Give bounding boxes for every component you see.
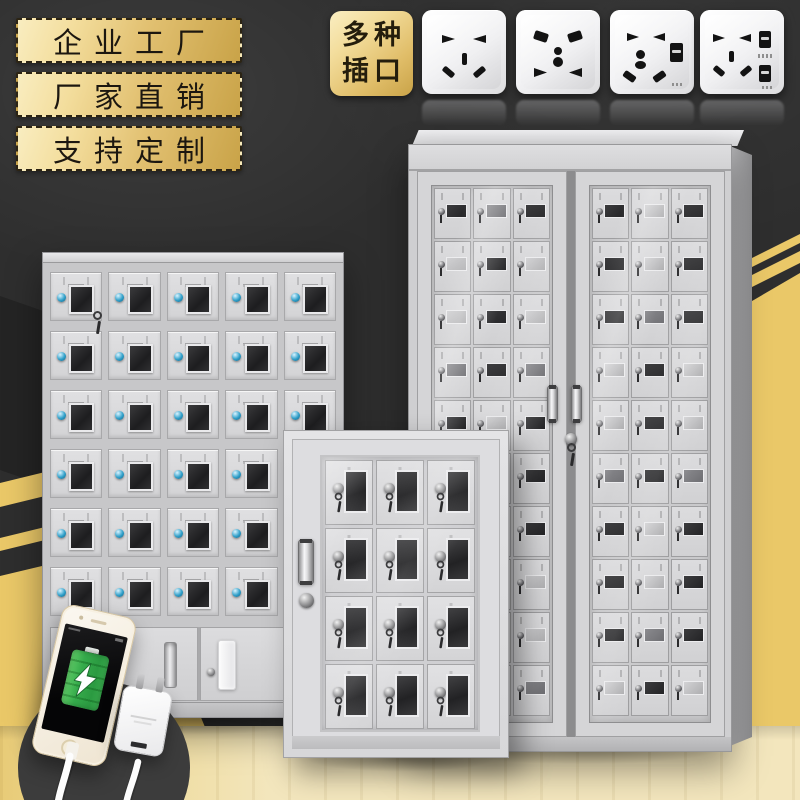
locker-door — [631, 294, 668, 345]
lock-icon — [291, 411, 300, 420]
lock-icon — [517, 367, 524, 374]
lock-icon — [635, 420, 642, 427]
key-icon — [335, 561, 343, 569]
door-handle — [297, 336, 323, 344]
feature-tag-text-line1: 多种 — [337, 18, 406, 54]
locker-window — [245, 285, 270, 314]
door-handle — [297, 395, 323, 403]
locker-window — [525, 628, 546, 642]
locker-window — [128, 580, 153, 609]
locker-door — [376, 596, 424, 661]
cabinet-side-panel — [730, 146, 752, 746]
locker-window — [186, 521, 211, 550]
lock-icon — [57, 529, 66, 538]
door-handle — [180, 454, 206, 462]
locker-door — [434, 347, 471, 398]
locker-window — [644, 628, 665, 642]
locker-door — [167, 390, 219, 439]
lock-icon — [596, 579, 603, 586]
locker-window — [644, 681, 665, 695]
locker-door — [671, 453, 708, 504]
home-button — [59, 738, 79, 758]
locker-door — [671, 347, 708, 398]
locker-window — [344, 674, 368, 717]
lock-icon — [115, 293, 124, 302]
locker-window — [604, 310, 625, 324]
lock-icon — [115, 411, 124, 420]
lock-icon — [517, 208, 524, 215]
promo-badge: 企业工厂 — [16, 18, 242, 63]
locker-window — [186, 580, 211, 609]
locker-window — [604, 363, 625, 377]
locker-door — [473, 188, 510, 239]
locker-window — [446, 416, 467, 430]
key-icon — [567, 443, 576, 452]
locker-window — [683, 522, 704, 536]
locker-door — [376, 528, 424, 593]
feature-tag: 多种 插口 — [330, 11, 413, 96]
lock-icon — [57, 588, 66, 597]
locker-door — [671, 241, 708, 292]
lock-icon — [675, 208, 682, 215]
locker-door — [225, 272, 277, 321]
locker-window — [644, 310, 665, 324]
locker-window — [245, 580, 270, 609]
locker-window — [186, 344, 211, 373]
locker-window — [486, 204, 507, 218]
door-handle — [180, 572, 206, 580]
promo-badge: 厂家直销 — [16, 72, 242, 117]
door-handle — [238, 513, 264, 521]
door-handle — [238, 572, 264, 580]
feature-tag-text-line2: 插口 — [337, 54, 406, 90]
locker-window — [186, 285, 211, 314]
charger-prong — [136, 673, 145, 689]
locker-door — [671, 665, 708, 716]
locker-window — [604, 469, 625, 483]
lock-icon — [596, 526, 603, 533]
lock-icon — [635, 579, 642, 586]
locker-window — [525, 469, 546, 483]
locker-window — [683, 469, 704, 483]
locker-door — [631, 506, 668, 557]
lock-icon — [232, 411, 241, 420]
lock-icon — [635, 314, 642, 321]
locker-window — [69, 403, 94, 432]
locker-window — [446, 204, 467, 218]
locker-window — [344, 538, 368, 581]
locker-window — [303, 403, 328, 432]
lightning-bolt-icon — [71, 660, 101, 700]
door-handle — [238, 395, 264, 403]
locker-door — [631, 559, 668, 610]
lock-icon — [596, 208, 603, 215]
lock-icon — [635, 367, 642, 374]
door-handle — [122, 395, 148, 403]
locker-window — [446, 674, 470, 717]
locker-door — [592, 612, 629, 663]
lock-icon — [299, 593, 314, 608]
locker-window — [69, 521, 94, 550]
locker-window — [525, 522, 546, 536]
cabinet-top-rim — [43, 253, 343, 263]
charging-battery-icon — [60, 643, 111, 712]
locker-window — [395, 470, 419, 513]
locker-window — [395, 538, 419, 581]
locker-door — [225, 567, 277, 616]
locker-window — [683, 628, 704, 642]
lock-icon — [477, 314, 484, 321]
lock-icon — [517, 314, 524, 321]
locker-door — [671, 612, 708, 663]
lock-icon — [517, 526, 524, 533]
lock-icon — [675, 685, 682, 692]
lock-icon — [57, 293, 66, 302]
locker-window — [344, 606, 368, 649]
locker-door — [427, 664, 475, 729]
lock-icon — [174, 293, 183, 302]
lock-icon — [675, 632, 682, 639]
key-icon — [335, 629, 343, 637]
locker-window — [525, 575, 546, 589]
lock-icon — [477, 208, 484, 215]
door-handle — [122, 572, 148, 580]
locker-door — [631, 347, 668, 398]
locker-window — [683, 310, 704, 324]
locker-window — [486, 416, 507, 430]
lock-icon — [57, 411, 66, 420]
door-handle — [63, 454, 89, 462]
locker-door — [592, 294, 629, 345]
lock-icon — [675, 473, 682, 480]
lock-icon — [115, 529, 124, 538]
locker-window — [245, 403, 270, 432]
key-icon — [335, 493, 343, 501]
locker-window — [395, 674, 419, 717]
storage-door — [200, 627, 286, 701]
phone-camera — [79, 615, 84, 620]
locker-door — [671, 506, 708, 557]
lock-icon — [596, 261, 603, 268]
locker-door — [167, 272, 219, 321]
locker-door — [513, 347, 550, 398]
locker-window — [644, 575, 665, 589]
locker-door — [631, 400, 668, 451]
locker-window — [683, 204, 704, 218]
locker-door — [167, 449, 219, 498]
key-icon — [386, 697, 394, 705]
lock-icon — [232, 529, 241, 538]
locker-door — [427, 528, 475, 593]
locker-window — [486, 257, 507, 271]
lock-icon — [438, 367, 445, 374]
lock-icon — [115, 470, 124, 479]
locker-window — [69, 462, 94, 491]
locker-grid — [322, 457, 478, 730]
door-handle — [180, 336, 206, 344]
lock-icon — [517, 632, 524, 639]
locker-window — [604, 681, 625, 695]
lock-icon — [635, 261, 642, 268]
phone-earpiece — [90, 619, 106, 626]
lock-icon — [517, 685, 524, 692]
locker-window — [69, 344, 94, 373]
door-handle — [122, 277, 148, 285]
locker-door — [473, 294, 510, 345]
locker-window — [446, 606, 470, 649]
lock-icon — [174, 352, 183, 361]
locker-window — [128, 403, 153, 432]
locker-door — [631, 241, 668, 292]
locker-window — [128, 521, 153, 550]
locker-door — [225, 331, 277, 380]
locker-door — [631, 453, 668, 504]
locker-door — [513, 188, 550, 239]
locker-door — [671, 188, 708, 239]
lock-icon — [438, 208, 445, 215]
locker-window — [604, 204, 625, 218]
product-banner: 企业工厂厂家直销支持定制 多种 插口 — [0, 0, 800, 800]
locker-window — [683, 363, 704, 377]
locker-window — [69, 285, 94, 314]
door-handle — [180, 513, 206, 521]
locker-door — [50, 508, 102, 557]
locker-door — [225, 449, 277, 498]
locker-door — [592, 453, 629, 504]
locker-window — [644, 469, 665, 483]
locker-door — [513, 506, 550, 557]
locker-window — [245, 462, 270, 491]
locker-door — [631, 665, 668, 716]
locker-door — [325, 664, 373, 729]
locker-door — [513, 559, 550, 610]
locker-door — [108, 449, 160, 498]
locker-window — [644, 363, 665, 377]
lock-icon — [232, 352, 241, 361]
locker-door — [427, 596, 475, 661]
lock-icon — [477, 261, 484, 268]
lock-icon — [675, 526, 682, 533]
locker-door — [671, 559, 708, 610]
lock-icon — [675, 314, 682, 321]
locker-window — [395, 606, 419, 649]
locker-door — [592, 665, 629, 716]
locker-window — [486, 363, 507, 377]
locker-window — [644, 257, 665, 271]
locker-window — [644, 204, 665, 218]
locker-door — [434, 294, 471, 345]
locker-door — [325, 596, 373, 661]
locker-window — [186, 462, 211, 491]
locker-window — [604, 522, 625, 536]
locker-window — [245, 521, 270, 550]
door-handle — [63, 513, 89, 521]
locker-window — [604, 416, 625, 430]
lock-icon — [291, 352, 300, 361]
door-handle — [164, 642, 177, 688]
locker-door — [167, 331, 219, 380]
lock-icon — [675, 261, 682, 268]
locker-window — [446, 470, 470, 513]
locker-door — [108, 508, 160, 557]
door-handle — [63, 572, 89, 580]
locker-door — [108, 272, 160, 321]
locker-window — [644, 522, 665, 536]
glass-door — [320, 455, 480, 732]
lock-icon — [115, 352, 124, 361]
wrapped-handle — [218, 640, 236, 690]
door-handle — [63, 395, 89, 403]
lock-icon — [596, 632, 603, 639]
door-handle — [238, 336, 264, 344]
lock-icon — [57, 470, 66, 479]
door-handle — [238, 277, 264, 285]
locker-window — [128, 462, 153, 491]
locker-door — [108, 567, 160, 616]
locker-window — [245, 344, 270, 373]
lock-icon — [675, 579, 682, 586]
locker-door — [592, 241, 629, 292]
lock-icon — [477, 420, 484, 427]
door-handle — [63, 336, 89, 344]
locker-door — [592, 188, 629, 239]
lock-icon — [675, 367, 682, 374]
lock-icon — [174, 588, 183, 597]
lock-icon — [596, 314, 603, 321]
lock-icon — [232, 588, 241, 597]
lock-icon — [596, 367, 603, 374]
key-icon — [437, 493, 445, 501]
locker-window — [683, 575, 704, 589]
lock-icon — [635, 208, 642, 215]
locker-window — [525, 310, 546, 324]
lock-icon — [635, 526, 642, 533]
locker-door — [50, 449, 102, 498]
locker-window — [186, 403, 211, 432]
lock-icon — [517, 473, 524, 480]
locker-door — [167, 567, 219, 616]
lock-icon — [232, 293, 241, 302]
locker-window — [525, 363, 546, 377]
locker-window — [303, 285, 328, 314]
usb-port-icon — [130, 741, 147, 749]
locker-window — [683, 257, 704, 271]
locker-door — [513, 453, 550, 504]
locker-window — [604, 257, 625, 271]
door-handle — [122, 336, 148, 344]
locker-door — [325, 528, 373, 593]
locker-window — [525, 204, 546, 218]
key-icon — [386, 561, 394, 569]
locker-window — [683, 681, 704, 695]
door-handle — [571, 385, 582, 423]
lock-icon — [635, 685, 642, 692]
locker-door — [631, 612, 668, 663]
locker-window — [525, 416, 546, 430]
charging-cabinet-middle — [283, 430, 509, 758]
locker-window — [683, 416, 704, 430]
locker-window — [604, 628, 625, 642]
locker-window — [525, 257, 546, 271]
locker-door — [513, 241, 550, 292]
door-handle — [122, 513, 148, 521]
locker-window — [604, 575, 625, 589]
locker-window — [644, 416, 665, 430]
promo-badge-label: 厂家直销 — [41, 74, 217, 116]
door-handle — [238, 454, 264, 462]
door-handle — [547, 385, 558, 423]
locker-window — [446, 538, 470, 581]
lock-icon — [635, 473, 642, 480]
locker-door — [513, 294, 550, 345]
lock-icon — [675, 420, 682, 427]
locker-window — [486, 310, 507, 324]
locker-window — [303, 344, 328, 373]
locker-door — [434, 188, 471, 239]
charger-prong — [155, 677, 164, 693]
lock-icon — [635, 632, 642, 639]
locker-door — [376, 664, 424, 729]
lock-icon — [291, 293, 300, 302]
glass-door-right — [575, 171, 725, 737]
locker-window — [344, 470, 368, 513]
locker-window — [446, 310, 467, 324]
battery-body — [61, 648, 111, 711]
locker-window — [525, 681, 546, 695]
locker-door — [592, 559, 629, 610]
locker-window — [128, 285, 153, 314]
lock-icon — [596, 473, 603, 480]
key-icon — [93, 311, 102, 320]
door-handle — [180, 395, 206, 403]
lock-icon — [232, 470, 241, 479]
locker-door — [592, 400, 629, 451]
key-icon — [437, 629, 445, 637]
promo-badge: 支持定制 — [16, 126, 242, 171]
lock-icon — [115, 588, 124, 597]
cabinet-top-rim — [409, 145, 731, 171]
lock-icon — [438, 314, 445, 321]
locker-door — [473, 241, 510, 292]
key-icon — [437, 697, 445, 705]
key-icon — [386, 629, 394, 637]
lock-icon — [174, 411, 183, 420]
lock-icon — [438, 261, 445, 268]
locker-door — [376, 460, 424, 525]
locker-door — [473, 347, 510, 398]
locker-door — [284, 272, 336, 321]
locker-door — [671, 294, 708, 345]
locker-door — [50, 331, 102, 380]
lock-icon — [517, 420, 524, 427]
locker-window — [128, 344, 153, 373]
lock-icon — [596, 420, 603, 427]
lock-icon — [477, 367, 484, 374]
lock-icon — [207, 668, 215, 676]
locker-door — [671, 400, 708, 451]
lock-icon — [517, 579, 524, 586]
door-handle — [180, 277, 206, 285]
key-icon — [335, 697, 343, 705]
promo-badge-label: 企业工厂 — [41, 20, 217, 62]
lock-icon — [596, 685, 603, 692]
locker-window — [446, 363, 467, 377]
locker-window — [446, 257, 467, 271]
locker-door — [631, 188, 668, 239]
key-icon — [386, 493, 394, 501]
locker-door — [325, 460, 373, 525]
locker-door — [225, 508, 277, 557]
